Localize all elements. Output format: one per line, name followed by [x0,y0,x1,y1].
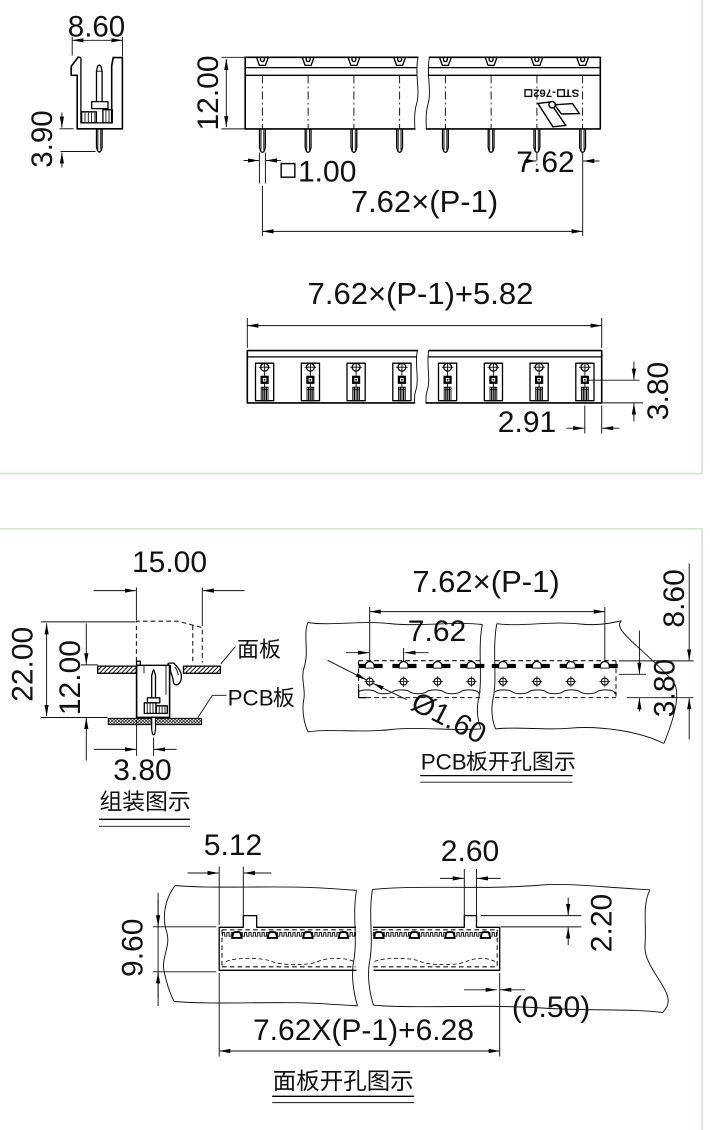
svg-text:ST: ST [565,86,580,98]
svg-text:7.62: 7.62 [408,615,466,648]
svg-text:8.60: 8.60 [68,11,125,44]
svg-text:2.20: 2.20 [586,894,619,952]
svg-text:1.00: 1.00 [298,156,356,189]
svg-text:PCB: PCB [228,686,274,711]
svg-text:12.00: 12.00 [54,640,87,715]
svg-text:5.12: 5.12 [204,829,262,862]
svg-text:7.62×(P-1)+5.82: 7.62×(P-1)+5.82 [308,276,534,311]
svg-text:3.80: 3.80 [113,754,171,787]
svg-text:3.80: 3.80 [649,659,682,717]
svg-text:2.60: 2.60 [441,835,499,868]
svg-text:-762: -762 [533,86,556,98]
svg-text:7.62X(P-1)+6.28: 7.62X(P-1)+6.28 [253,1014,474,1047]
svg-text:8.60: 8.60 [658,569,691,627]
svg-text:22.00: 22.00 [7,627,40,702]
svg-text:3.90: 3.90 [26,110,59,167]
svg-text:9.60: 9.60 [117,919,150,977]
svg-text:PCB: PCB [421,749,467,774]
svg-text:7.62: 7.62 [516,146,574,179]
svg-text:15.00: 15.00 [132,546,207,579]
svg-text:3.80: 3.80 [642,362,675,420]
svg-text:7.62×(P-1): 7.62×(P-1) [351,184,498,219]
svg-text:(0.50): (0.50) [512,991,590,1024]
svg-text:12.00: 12.00 [192,55,225,130]
svg-text:2.91: 2.91 [498,406,556,439]
svg-text:7.62×(P-1): 7.62×(P-1) [412,564,559,599]
